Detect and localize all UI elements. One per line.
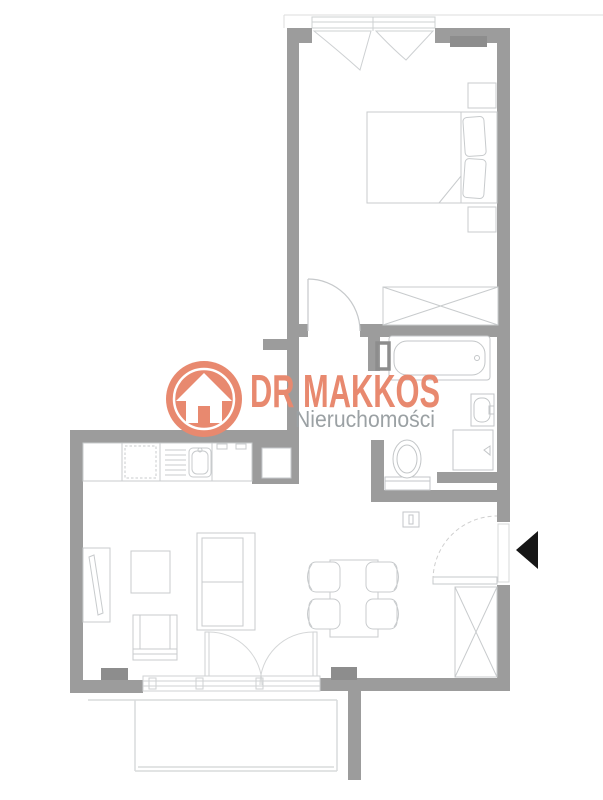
- ventilation-shaft-inner: [262, 448, 291, 478]
- washbasin: [471, 394, 494, 426]
- living-room-furniture: [83, 533, 399, 660]
- entrance-door-swing: [433, 516, 497, 580]
- entry-wardrobe: [455, 587, 497, 677]
- dining-chair: [308, 599, 341, 629]
- window: [312, 17, 435, 70]
- wall-bath-notch: [437, 472, 510, 483]
- wall-right-upper: [497, 28, 510, 522]
- wall-stub-down: [348, 691, 361, 780]
- entrance-threshold: [498, 524, 509, 582]
- balcony-door-leaf: [313, 632, 317, 676]
- balcony: [88, 700, 337, 771]
- wall-top-left-of-window: [287, 28, 312, 43]
- dining-chair: [366, 562, 399, 592]
- wall-exterior-fin: [263, 339, 288, 350]
- bedroom-door: [308, 279, 360, 331]
- bedroom-furniture: [367, 83, 498, 325]
- floor-plan: DR MAKKOS Nieruchomości: [0, 0, 603, 800]
- floor-plan-page: DR MAKKOS Nieruchomości: [0, 0, 603, 800]
- entrance-door-leaf: [433, 577, 497, 584]
- pillow: [463, 116, 487, 156]
- dining-chair: [308, 562, 341, 592]
- wall-left: [70, 430, 83, 693]
- wall-kitchen-top: [70, 430, 299, 443]
- window-casement-right: [376, 31, 433, 60]
- wall-bath-bottom: [371, 490, 510, 502]
- wall-bottom-left: [70, 680, 143, 693]
- nightstand: [468, 207, 496, 232]
- balcony-door-leaf: [205, 632, 209, 676]
- coffee-table: [131, 551, 170, 593]
- wall-bedroom-bathroom: [360, 324, 500, 337]
- wardrobe: [383, 287, 498, 325]
- armchair: [133, 615, 177, 660]
- radiator-bedroom: [450, 36, 487, 47]
- dining-chair: [366, 599, 399, 629]
- entrance-door: [433, 516, 509, 584]
- radiator-living-left: [101, 668, 128, 680]
- pillow: [463, 158, 487, 198]
- washing-machine: [453, 430, 493, 470]
- wall-right-lower: [497, 585, 510, 691]
- wall-bedroom-door-stub: [288, 324, 308, 337]
- tv-unit: [83, 548, 110, 622]
- kitchen-counter: [83, 443, 252, 481]
- entrance-arrow: [516, 531, 538, 569]
- sofa: [197, 533, 255, 630]
- watermark: DR MAKKOS Nieruchomości: [166, 361, 440, 437]
- radiator-living-right: [331, 667, 357, 680]
- brand-subtitle: Nieruchomości: [295, 406, 435, 432]
- nightstand: [468, 83, 496, 108]
- toilet: [385, 440, 430, 490]
- hall-floor-symbol: [403, 512, 419, 527]
- window-casement-left: [314, 31, 371, 70]
